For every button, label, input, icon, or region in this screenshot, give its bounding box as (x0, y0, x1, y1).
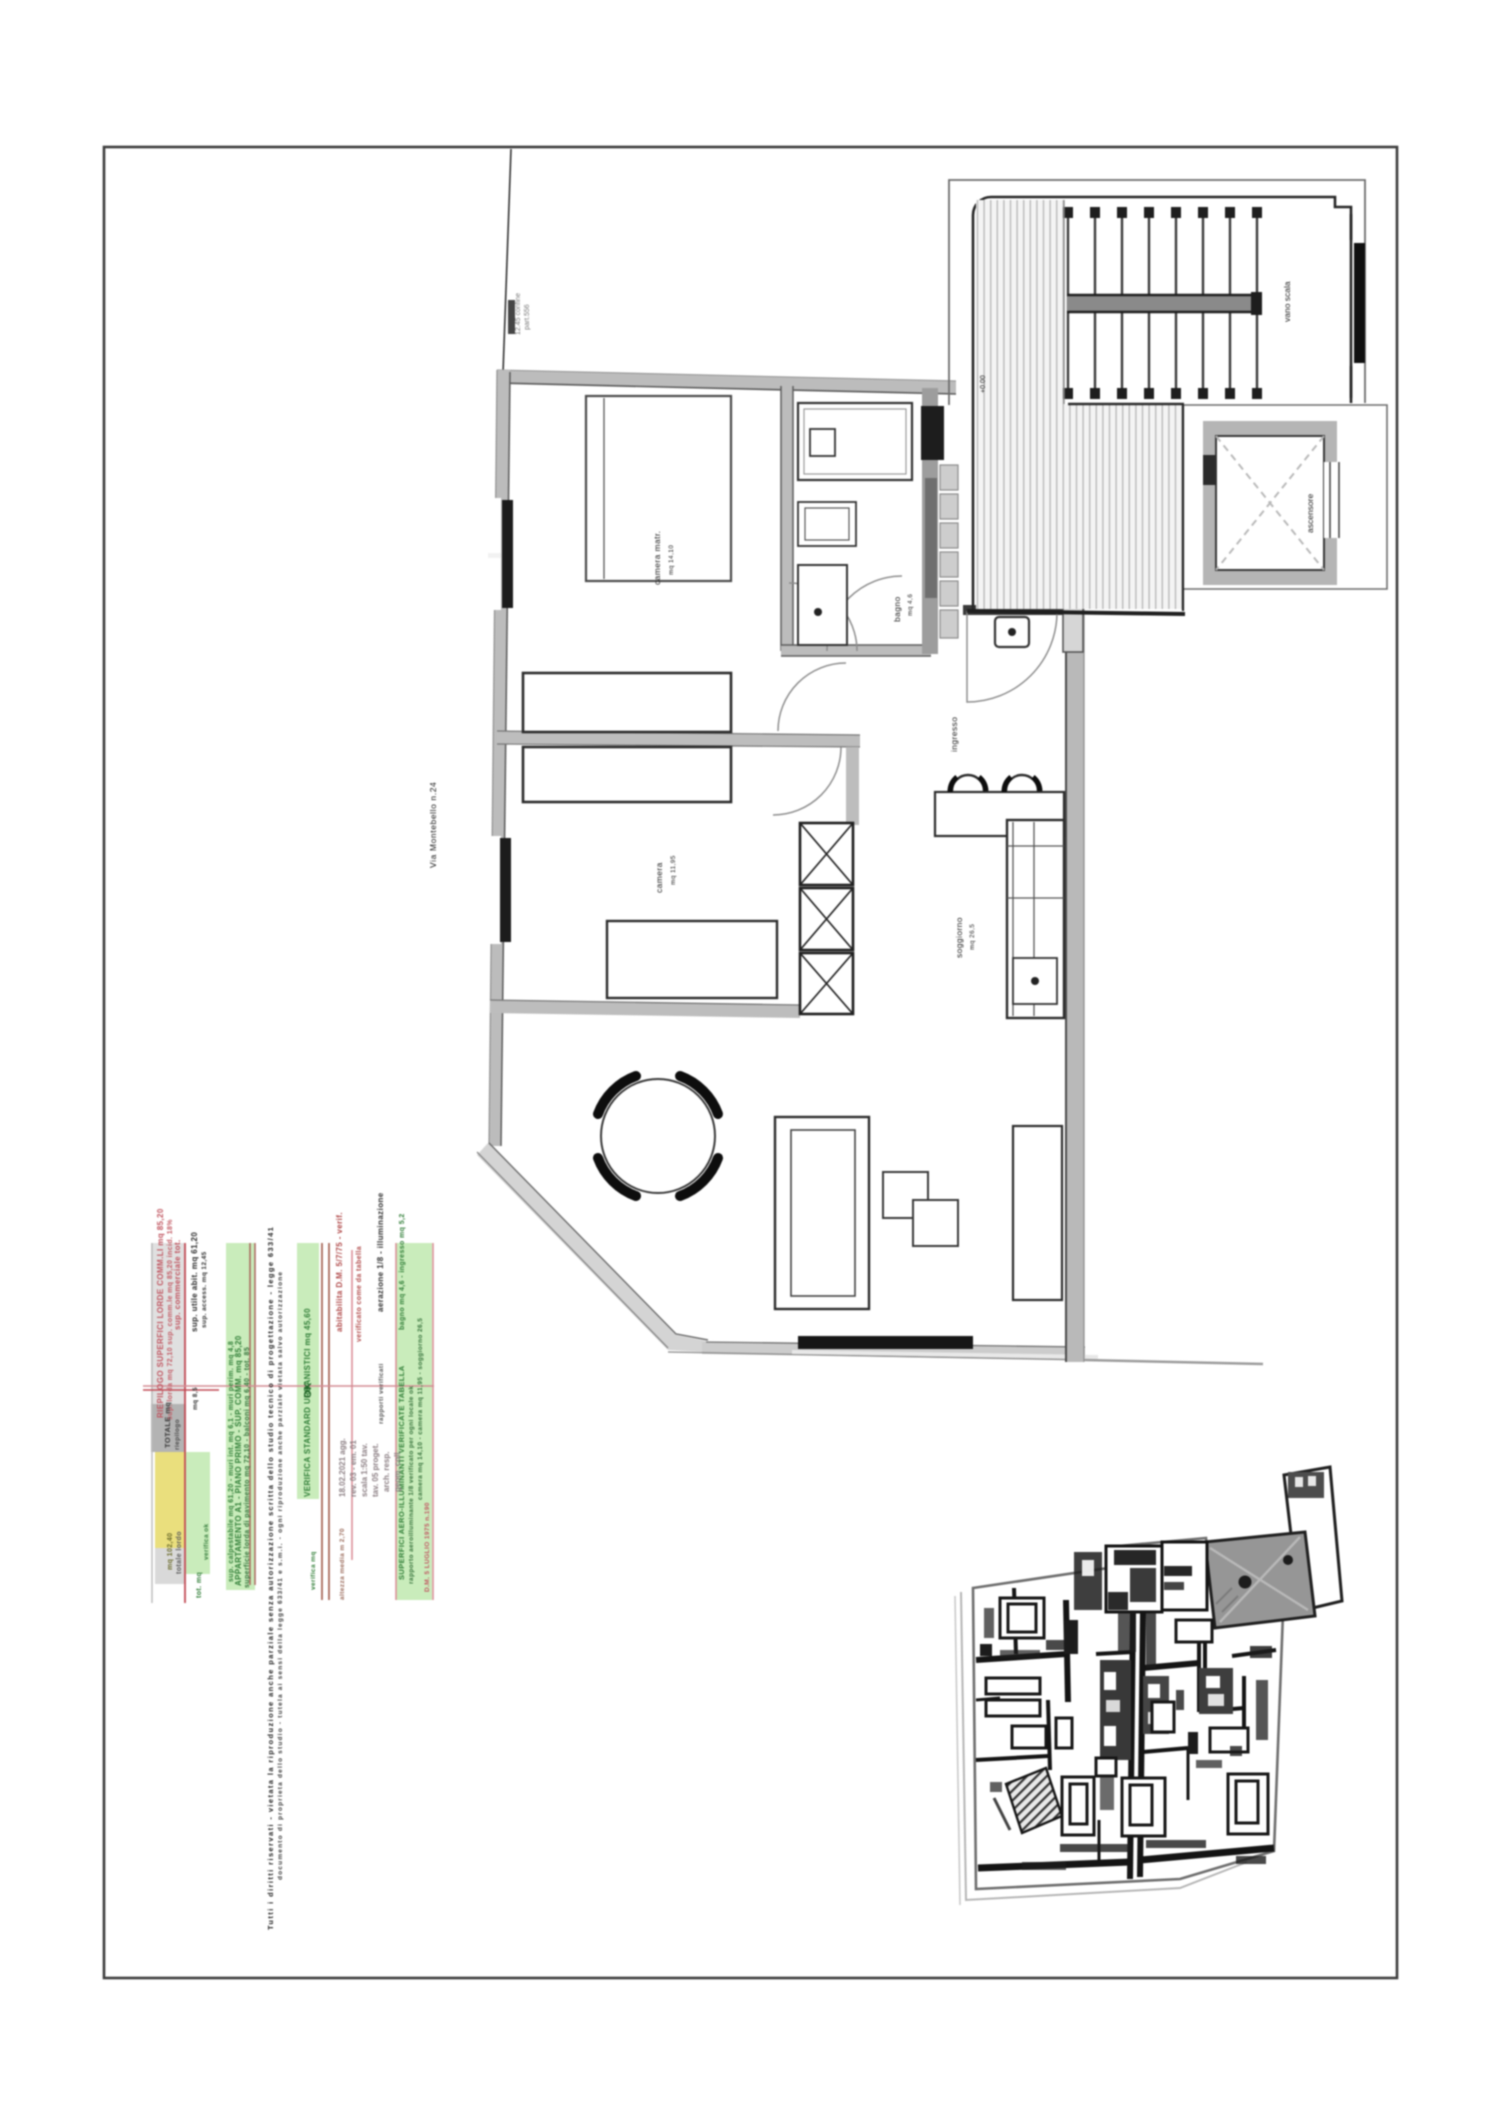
svg-text:VERIFICA STANDARD URBANISTICI: VERIFICA STANDARD URBANISTICI mq 45,60 (303, 1308, 312, 1497)
svg-text:camera mq 14,10 - camera mq 11: camera mq 14,10 - camera mq 11,95 - sogg… (417, 1318, 424, 1500)
svg-text:documento di proprieta dello s: documento di proprieta dello studio - tu… (277, 1271, 284, 1880)
svg-text:Tutti i diritti riservati - vi: Tutti i diritti riservati - vietata la r… (266, 1226, 275, 1930)
svg-text:tot. mq: tot. mq (196, 1572, 203, 1598)
svg-text:altezza media m 2,70: altezza media m 2,70 (339, 1528, 346, 1600)
svg-text:APPARTAMENTO A1 - PIANO PRIMO: APPARTAMENTO A1 - PIANO PRIMO - SUP. COM… (234, 1335, 243, 1586)
svg-text:mq 102,40: mq 102,40 (167, 1533, 174, 1570)
svg-text:D.M. 5 LUGLIO 1975 n.190: D.M. 5 LUGLIO 1975 n.190 (424, 1502, 431, 1592)
svg-text:sup. utile abit. mq 61,20: sup. utile abit. mq 61,20 (190, 1232, 199, 1332)
svg-text:geom. coll.: geom. coll. (393, 1450, 402, 1492)
svg-text:scala 1:50 tav.: scala 1:50 tav. (360, 1443, 369, 1497)
svg-text:ingresso: ingresso (949, 717, 959, 752)
svg-text:mq 11,95: mq 11,95 (670, 855, 677, 885)
svg-text:bagno mq 4,6 - ingresso mq 5,2: bagno mq 4,6 - ingresso mq 5,2 (399, 1213, 406, 1330)
svg-text:18.02.2021 agg.: 18.02.2021 agg. (338, 1438, 347, 1497)
svg-text:part.556: part.556 (524, 304, 531, 330)
svg-text:12.45 confine: 12.45 confine (515, 293, 522, 335)
svg-text:ascensore: ascensore (1305, 494, 1315, 533)
svg-text:superficie lorda di pavimento: superficie lorda di pavimento mq 72,10 -… (244, 1347, 251, 1588)
svg-text:arch. resp.: arch. resp. (382, 1452, 391, 1492)
svg-text:verificato come da tabella: verificato come da tabella (356, 1246, 363, 1342)
svg-text:Via Montebello n.24: Via Montebello n.24 (428, 782, 438, 868)
svg-text:tav. 05 proget.: tav. 05 proget. (371, 1443, 380, 1497)
svg-text:rapporto aeroilluminante 1/8 v: rapporto aeroilluminante 1/8 verificato … (408, 1386, 415, 1584)
svg-text:RIEPILOGO SUPERFICI LORDE COMM: RIEPILOGO SUPERFICI LORDE COMM.LI mq 85,… (156, 1208, 165, 1418)
svg-text:aerazione 1/8 - illuminazione: aerazione 1/8 - illuminazione (376, 1192, 385, 1312)
svg-text:TOTALE mq: TOTALE mq (163, 1402, 172, 1448)
svg-text:sup. access. mq 12,45: sup. access. mq 12,45 (201, 1251, 208, 1328)
svg-text:vano scala: vano scala (1282, 281, 1292, 322)
svg-text:sup. commerciale tot.: sup. commerciale tot. (173, 1239, 182, 1330)
svg-text:mq 26,5: mq 26,5 (969, 924, 976, 950)
svg-text:verifica mq: verifica mq (310, 1551, 317, 1590)
svg-text:bagno: bagno (892, 596, 902, 622)
svg-text:verifica ok: verifica ok (203, 1523, 210, 1560)
svg-text:abitabilita D.M. 5/7/75 - veri: abitabilita D.M. 5/7/75 - verif. (335, 1212, 344, 1332)
svg-text:totale lordo: totale lordo (176, 1531, 183, 1574)
svg-text:mq 4,6: mq 4,6 (907, 594, 914, 616)
svg-text:riepilogo: riepilogo (174, 1419, 181, 1450)
svg-text:camera: camera (654, 862, 664, 893)
svg-text:mq 8,5: mq 8,5 (192, 1387, 199, 1410)
svg-text:rapporti verificati: rapporti verificati (378, 1363, 385, 1424)
svg-text:+0.00: +0.00 (980, 375, 987, 393)
svg-text:rev. 03 - em. 01: rev. 03 - em. 01 (349, 1440, 358, 1497)
svg-text:OK: OK (303, 1382, 314, 1398)
svg-text:soggiorno: soggiorno (954, 917, 964, 958)
svg-text:camera matr.: camera matr. (652, 531, 662, 585)
svg-text:mq 14,10: mq 14,10 (668, 545, 675, 575)
